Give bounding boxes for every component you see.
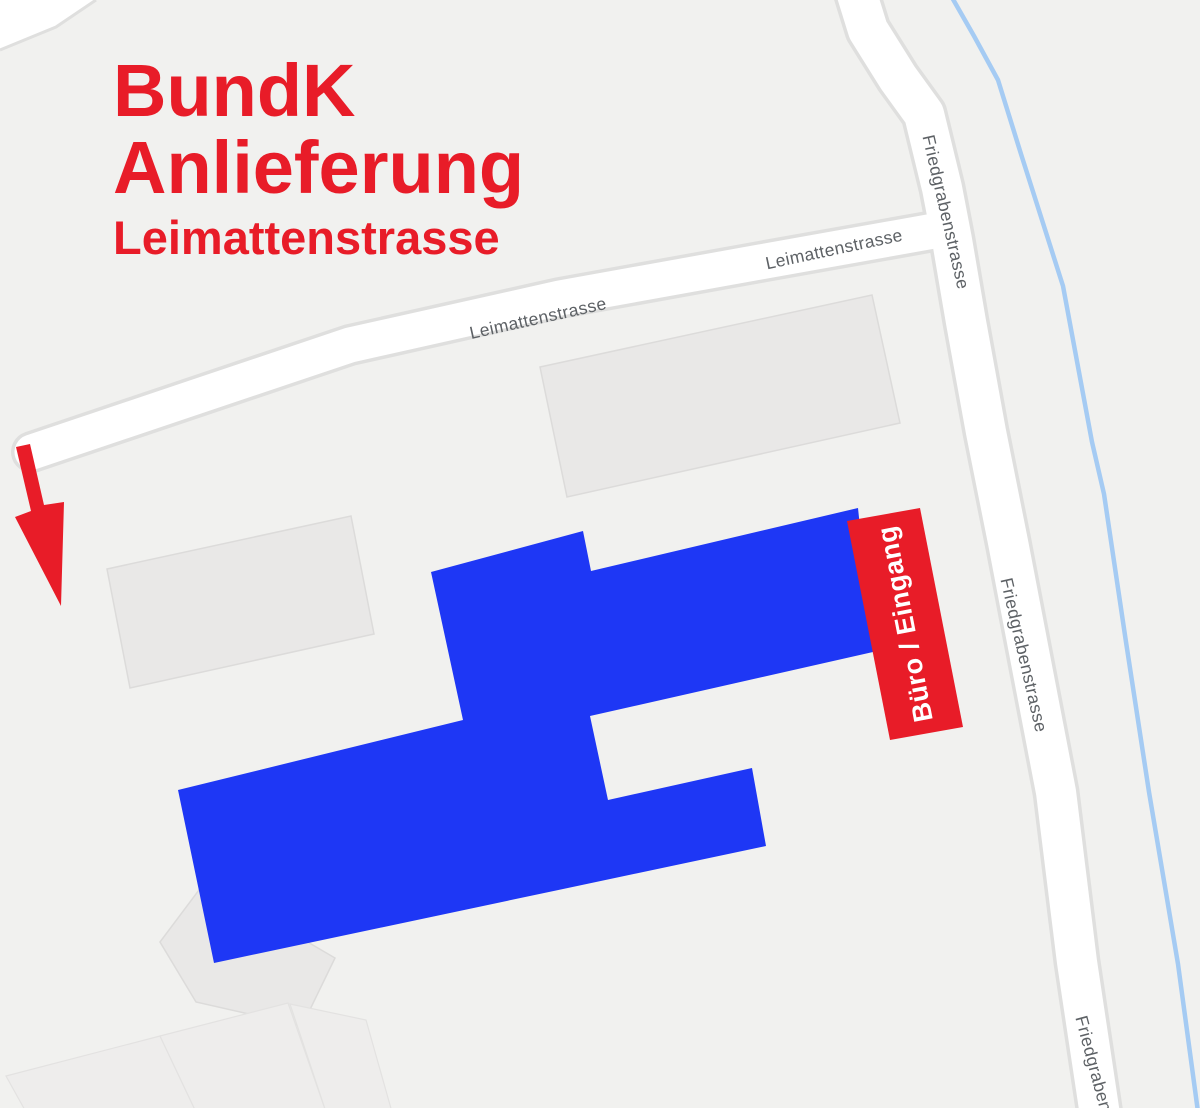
building-top-center: [540, 295, 900, 497]
map-canvas: Büro / Eingang Leimattenstrasse Leimatte…: [0, 0, 1200, 1108]
map-title: BundK Anlieferung: [113, 52, 524, 206]
title-line-1: BundK: [113, 52, 524, 129]
title-line-2: Anlieferung: [113, 129, 524, 206]
building-left: [107, 516, 374, 688]
map-subtitle: Leimattenstrasse: [113, 214, 500, 262]
